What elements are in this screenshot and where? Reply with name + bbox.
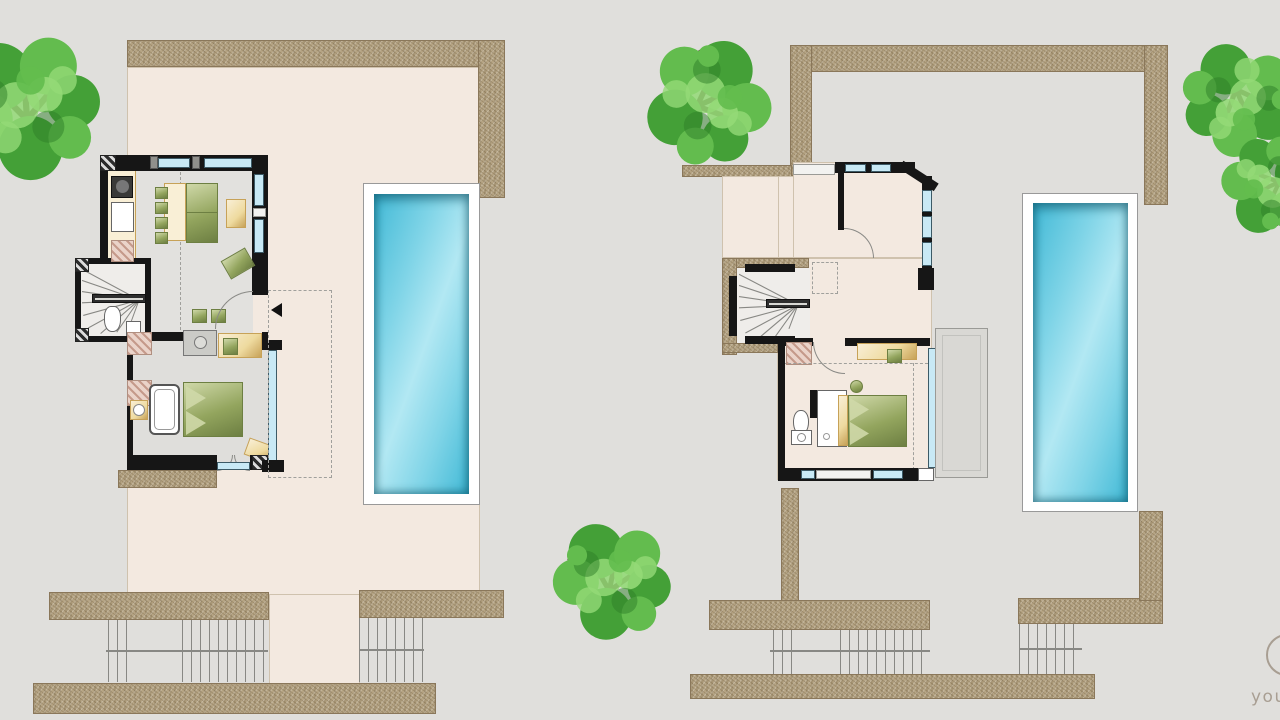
right-lower-wall-2-arm <box>1139 511 1163 601</box>
right-boundary-wall-top <box>795 45 1168 72</box>
bedroom2-sill-south <box>816 470 871 479</box>
upper-window-east-3 <box>922 242 932 266</box>
left-retaining-wall-bottom <box>33 683 436 714</box>
right-lower-wall-2 <box>1018 598 1163 624</box>
tree-icon <box>522 500 698 676</box>
bedroom-wall-south-1 <box>127 455 217 470</box>
cooktop-burner <box>116 180 129 193</box>
left-boundary-wall-right <box>478 40 505 198</box>
right-stairs-outdoor-2 <box>840 630 930 675</box>
terrace-railing <box>793 164 835 175</box>
left-pool-water <box>374 194 469 494</box>
terrace-room-divider <box>838 172 844 230</box>
bedroom2-window-south-2 <box>873 470 903 479</box>
bathtub <box>149 384 180 435</box>
upper-wall-east-block <box>918 268 934 290</box>
hall-wardrobe-dashed <box>812 262 838 294</box>
bed-double <box>183 382 243 437</box>
wc-toilet <box>104 306 121 332</box>
right-stairs-landing-line <box>770 650 930 652</box>
left-boundary-wall-top <box>127 40 505 67</box>
right-pool-water <box>1033 203 1128 502</box>
living-window-sill <box>253 208 266 217</box>
watermark-logo-icon <box>1266 634 1280 676</box>
living-window-north-2 <box>204 158 252 168</box>
stair-rail-left <box>92 294 146 303</box>
shower-drain <box>823 433 830 440</box>
annex-corner-hatch-1 <box>75 258 89 272</box>
upper-window-east-2 <box>922 216 932 238</box>
headboard-cabinet <box>838 395 848 446</box>
living-window-north-1 <box>158 158 190 168</box>
living-window-east-2 <box>254 219 264 253</box>
left-stairs-landing-line <box>106 650 268 652</box>
wardrobe-plant-box <box>887 349 902 363</box>
living-window-east-1 <box>254 174 264 206</box>
watermark-text: you <box>1251 687 1280 709</box>
french-door-glass <box>217 462 250 470</box>
left-terrace-path <box>269 595 360 684</box>
stair-tower-wall-bottom <box>722 343 778 353</box>
right-lower-wall-1 <box>709 600 930 630</box>
bed-double-2 <box>848 395 907 447</box>
upper-window-east-1 <box>922 190 932 212</box>
dining-chair-1 <box>155 187 168 199</box>
left-lower-wall-2 <box>359 590 504 618</box>
window-post-2 <box>192 156 200 169</box>
dining-chair-2 <box>155 202 168 214</box>
counter-plant-box <box>223 338 238 355</box>
right-stairs-outdoor-1 <box>773 630 799 675</box>
tree-icon <box>0 27 116 205</box>
right-wall-stub <box>781 488 799 602</box>
annex-corner-hatch-2 <box>75 328 89 342</box>
kitchen-cabinet <box>111 240 134 262</box>
armchair <box>226 199 246 228</box>
island-basin <box>194 336 207 349</box>
bath-sink-basin <box>797 433 806 442</box>
left-stairs-landing-line-2 <box>359 649 424 651</box>
bedroom2-window-south-1 <box>801 470 815 479</box>
deck-joint-line <box>778 176 779 258</box>
dining-chair-4 <box>155 232 168 244</box>
upper-window-north-1 <box>845 164 866 172</box>
bath-zone-1 <box>127 332 152 355</box>
sofa <box>186 183 218 243</box>
pergola-dashed-outline <box>268 290 332 478</box>
window-post-1 <box>150 156 158 169</box>
stool <box>850 380 863 393</box>
left-lower-wall-1 <box>49 592 269 620</box>
stair-rail-right <box>766 299 810 308</box>
roof-dashed-line-v <box>913 363 914 470</box>
right-stairs-landing-line-2 <box>1019 648 1082 650</box>
right-boundary-wall-left <box>790 45 812 176</box>
site-plan-canvas: you <box>0 0 1280 720</box>
bedroom2-bath-zone <box>786 342 812 365</box>
stair-tower-bar-left <box>729 276 737 336</box>
bedroom2-wall-west <box>778 346 785 470</box>
left-house-base-wall <box>118 470 217 488</box>
upper-window-north-2 <box>871 164 891 172</box>
right-retaining-wall-bottom <box>690 674 1095 699</box>
corner-planter <box>918 468 934 481</box>
roof-dashed-line-h <box>778 363 928 364</box>
kitchen-sink <box>111 202 134 232</box>
shower-door <box>810 390 817 418</box>
vanity-basin <box>133 404 145 416</box>
balcony-deck <box>935 328 988 478</box>
stair-tower-bar-top <box>745 264 795 272</box>
floor-cushion-1 <box>192 309 207 323</box>
dining-chair-3 <box>155 217 168 229</box>
